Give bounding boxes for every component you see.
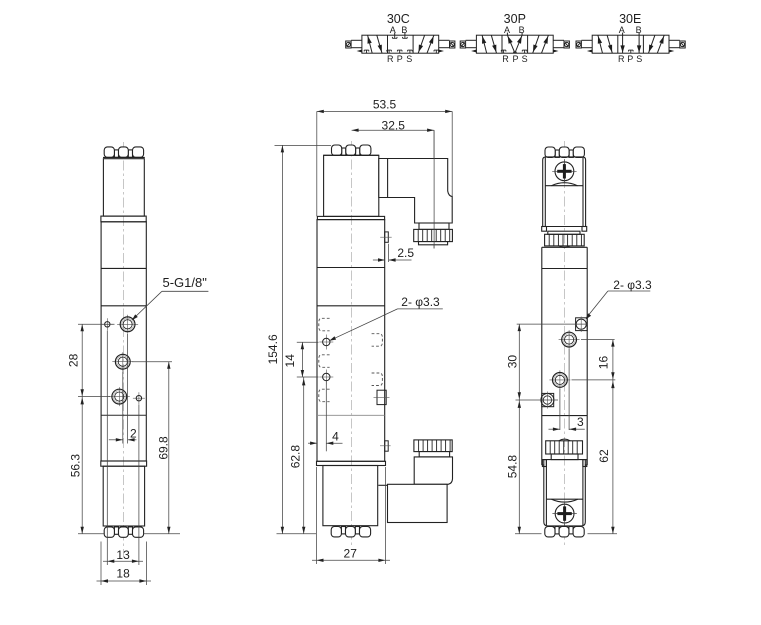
svg-text:S: S: [636, 54, 642, 64]
svg-text:62.8: 62.8: [288, 445, 302, 469]
svg-text:28: 28: [67, 353, 81, 367]
svg-text:R: R: [502, 54, 509, 64]
svg-text:R: R: [618, 54, 625, 64]
svg-text:2: 2: [130, 427, 137, 441]
svg-text:R: R: [387, 54, 394, 64]
svg-text:53.5: 53.5: [373, 98, 397, 112]
svg-text:2.5: 2.5: [397, 246, 414, 260]
svg-text:154.6: 154.6: [266, 334, 280, 364]
svg-text:30C: 30C: [387, 12, 410, 26]
svg-text:B: B: [636, 25, 642, 35]
svg-text:S: S: [522, 54, 528, 64]
svg-text:32.5: 32.5: [382, 119, 406, 133]
svg-text:2- φ3.3: 2- φ3.3: [613, 278, 652, 292]
svg-text:18: 18: [116, 567, 130, 581]
svg-text:56.3: 56.3: [68, 454, 82, 478]
svg-text:62: 62: [597, 449, 611, 463]
svg-text:13: 13: [116, 548, 130, 562]
svg-text:3: 3: [577, 415, 584, 429]
svg-text:P: P: [397, 54, 403, 64]
svg-text:A: A: [619, 25, 625, 35]
svg-text:4: 4: [332, 429, 339, 443]
svg-text:30E: 30E: [619, 12, 641, 26]
svg-text:P: P: [512, 54, 518, 64]
svg-text:14: 14: [283, 354, 297, 368]
svg-text:A: A: [504, 25, 510, 35]
svg-text:16: 16: [597, 356, 611, 370]
svg-text:P: P: [627, 54, 633, 64]
svg-text:5-G1/8": 5-G1/8": [163, 275, 208, 290]
svg-text:27: 27: [344, 546, 358, 560]
svg-text:B: B: [519, 25, 525, 35]
svg-text:30: 30: [505, 355, 519, 369]
svg-text:S: S: [406, 54, 412, 64]
svg-text:54.8: 54.8: [505, 455, 519, 479]
svg-text:2- φ3.3: 2- φ3.3: [401, 295, 440, 309]
svg-text:A: A: [390, 25, 396, 35]
svg-text:B: B: [401, 25, 407, 35]
svg-text:69.8: 69.8: [157, 436, 171, 460]
svg-text:30P: 30P: [504, 12, 526, 26]
